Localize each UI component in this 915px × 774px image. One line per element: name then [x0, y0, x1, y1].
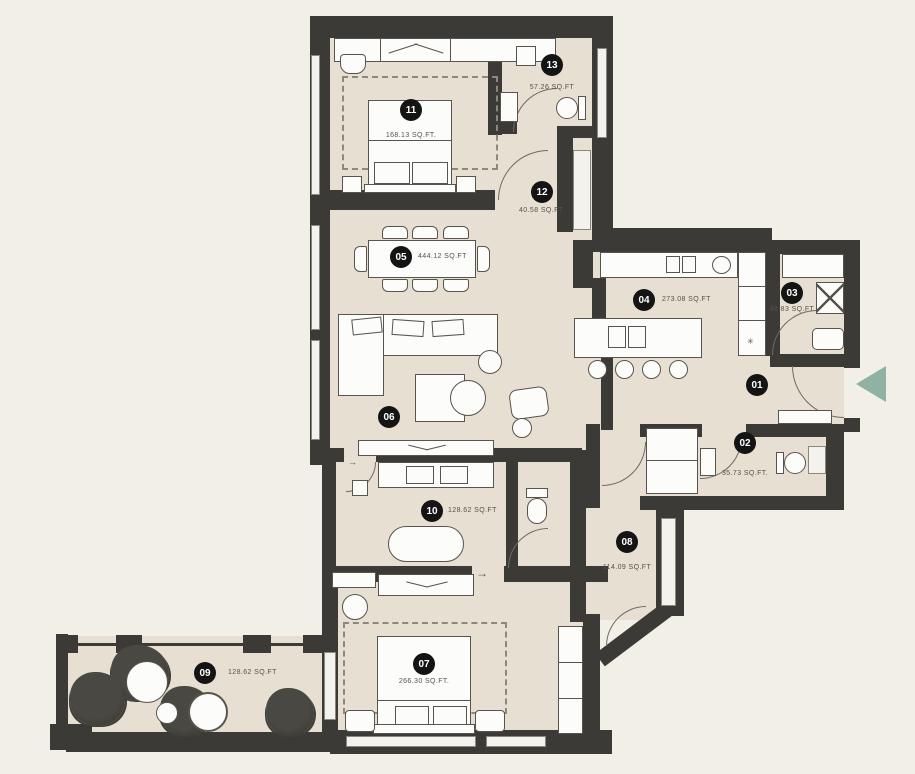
- bar-stool: [642, 360, 661, 379]
- wall-segment: [592, 278, 606, 318]
- vanity: [378, 462, 494, 488]
- cabinet: [332, 572, 376, 588]
- room-number: 13: [546, 60, 557, 71]
- wall-segment: [310, 16, 613, 38]
- room-number: 02: [739, 438, 750, 449]
- nightstand: [475, 710, 505, 732]
- cabinet: [782, 254, 844, 278]
- armchair: [340, 54, 366, 74]
- window: [311, 340, 320, 440]
- outdoor-chair: [188, 692, 228, 732]
- balcony-railing: [66, 643, 324, 646]
- kitchen-sink: [682, 256, 696, 273]
- room-marker-10: 10: [421, 500, 443, 522]
- entry-arrow-icon: [856, 366, 886, 402]
- area-label-02: 35.73 SQ.FT.: [700, 470, 790, 477]
- nightstand: [345, 710, 375, 732]
- room-number: 10: [426, 506, 437, 517]
- side-table: [478, 350, 502, 374]
- room-marker-04: 04: [633, 289, 655, 311]
- pillow: [412, 162, 448, 184]
- room-number: 03: [786, 288, 797, 299]
- closet: [558, 626, 583, 734]
- room-number: 04: [638, 295, 649, 306]
- area-label-09: 128.62 SQ.FT: [228, 669, 277, 676]
- island-sink: [628, 326, 646, 348]
- toilet-tank: [578, 96, 586, 120]
- sink: [440, 466, 468, 484]
- wall-segment: [844, 418, 860, 432]
- outdoor-table: [126, 661, 168, 703]
- room-marker-11: 11: [400, 99, 422, 121]
- toilet: [527, 498, 547, 524]
- dining-chair: [443, 226, 469, 239]
- area-label-11: 168.13 SQ.FT.: [366, 132, 456, 139]
- window: [486, 736, 546, 747]
- shaft: [808, 446, 826, 474]
- room-marker-12: 12: [531, 181, 553, 203]
- balcony-pillar: [62, 635, 78, 653]
- area-label-05: 444.12 SQ.FT: [418, 253, 467, 260]
- toilet: [556, 97, 578, 119]
- room-number: 01: [751, 380, 762, 391]
- shelf: [352, 480, 368, 496]
- shower-head-box: [516, 46, 536, 66]
- closet-divider: [559, 662, 582, 663]
- balcony-door: [324, 652, 336, 720]
- wall-segment: [557, 138, 573, 232]
- area-label-07: 266.30 SQ.FT.: [379, 678, 469, 685]
- flow-arrow: →: [348, 458, 357, 467]
- stool: [342, 594, 368, 620]
- wardrobe: [378, 574, 474, 596]
- cabinet-divider: [739, 320, 765, 321]
- coffee-table-round: [450, 380, 486, 416]
- pillow: [374, 162, 410, 184]
- bed-linen-line: [369, 140, 451, 141]
- cabinet-divider: [739, 286, 765, 287]
- room-number: 12: [536, 187, 547, 198]
- dining-chair: [382, 226, 408, 239]
- room-marker-05: 05: [390, 246, 412, 268]
- dining-chair: [443, 279, 469, 292]
- room-marker-08: 08: [616, 531, 638, 553]
- bathtub: [388, 526, 464, 562]
- room-marker-02: 02: [734, 432, 756, 454]
- flow-arrow: →: [476, 567, 488, 579]
- balcony-pillar: [243, 635, 271, 653]
- kitchen-sink: [666, 256, 680, 273]
- window: [661, 518, 676, 606]
- room-number: 08: [621, 537, 632, 548]
- wall-segment: [573, 240, 593, 288]
- wall-segment: [844, 240, 860, 368]
- armchair: [508, 386, 550, 421]
- outdoor-side-table: [156, 702, 178, 724]
- dining-chair: [412, 226, 438, 239]
- wardrobe-divider: [380, 39, 381, 61]
- room-marker-06: 06: [378, 406, 400, 428]
- closet: [646, 428, 698, 494]
- wall-segment: [570, 450, 586, 622]
- window: [311, 225, 320, 330]
- sofa-cushion: [351, 316, 383, 335]
- bar-stool: [588, 360, 607, 379]
- room-marker-01: 01: [746, 374, 768, 396]
- floor-plan-canvas: ✳ → → 01 02 35.73 SQ: [0, 0, 915, 774]
- area-label-13: 57.26 SQ.FT: [507, 84, 597, 91]
- headboard: [364, 184, 456, 193]
- wall-segment: [330, 448, 344, 462]
- closet-divider: [647, 460, 697, 461]
- area-label-08: 114.09 SQ.FT: [582, 564, 672, 571]
- wall-segment: [557, 126, 593, 138]
- washer: [812, 328, 844, 350]
- area-label-04: 273.08 SQ.FT: [662, 296, 711, 303]
- appliance-star: ✳: [747, 338, 754, 346]
- bed-linen-line: [378, 700, 470, 701]
- wall-segment: [583, 614, 600, 740]
- console-table: [778, 410, 832, 424]
- room-marker-07: 07: [413, 653, 435, 675]
- sink: [500, 92, 518, 122]
- sofa-cushion: [431, 319, 464, 337]
- nightstand: [342, 176, 362, 193]
- dining-chair: [477, 246, 490, 272]
- wardrobe-divider: [450, 39, 451, 61]
- room-number: 11: [406, 105, 417, 116]
- room-marker-09: 09: [194, 662, 216, 684]
- nightstand: [456, 176, 476, 193]
- island-sink: [608, 326, 626, 348]
- dining-chair: [382, 279, 408, 292]
- cooktop: [712, 256, 731, 274]
- wall-segment: [322, 448, 336, 580]
- wall-segment: [310, 190, 495, 210]
- balcony-pillar: [303, 635, 323, 653]
- room-number: 07: [418, 659, 429, 670]
- window: [311, 55, 320, 195]
- tree: [70, 672, 125, 726]
- area-label-12: 40.58 SQ.FT.: [497, 207, 587, 214]
- window: [346, 736, 476, 747]
- dining-chair: [412, 279, 438, 292]
- toilet-tank: [526, 488, 548, 498]
- room-number: 09: [199, 668, 210, 679]
- dining-chair: [354, 246, 367, 272]
- closet-divider: [559, 698, 582, 699]
- room-number: 05: [395, 252, 406, 263]
- area-label-03: 48.83 SQ.FT: [747, 306, 837, 313]
- sink: [406, 466, 434, 484]
- headboard: [373, 724, 475, 734]
- ottoman: [512, 418, 532, 438]
- room-marker-13: 13: [541, 54, 563, 76]
- shaft: [573, 150, 591, 230]
- wall-segment: [592, 228, 772, 252]
- bar-stool: [615, 360, 634, 379]
- window: [597, 48, 607, 138]
- bar-stool: [669, 360, 688, 379]
- sofa-cushion: [391, 319, 424, 337]
- room-marker-03: 03: [781, 282, 803, 304]
- room-number: 06: [383, 412, 394, 423]
- area-label-10: 128.62 SQ.FT: [448, 507, 497, 514]
- wall-segment: [586, 424, 600, 508]
- tree: [266, 688, 314, 736]
